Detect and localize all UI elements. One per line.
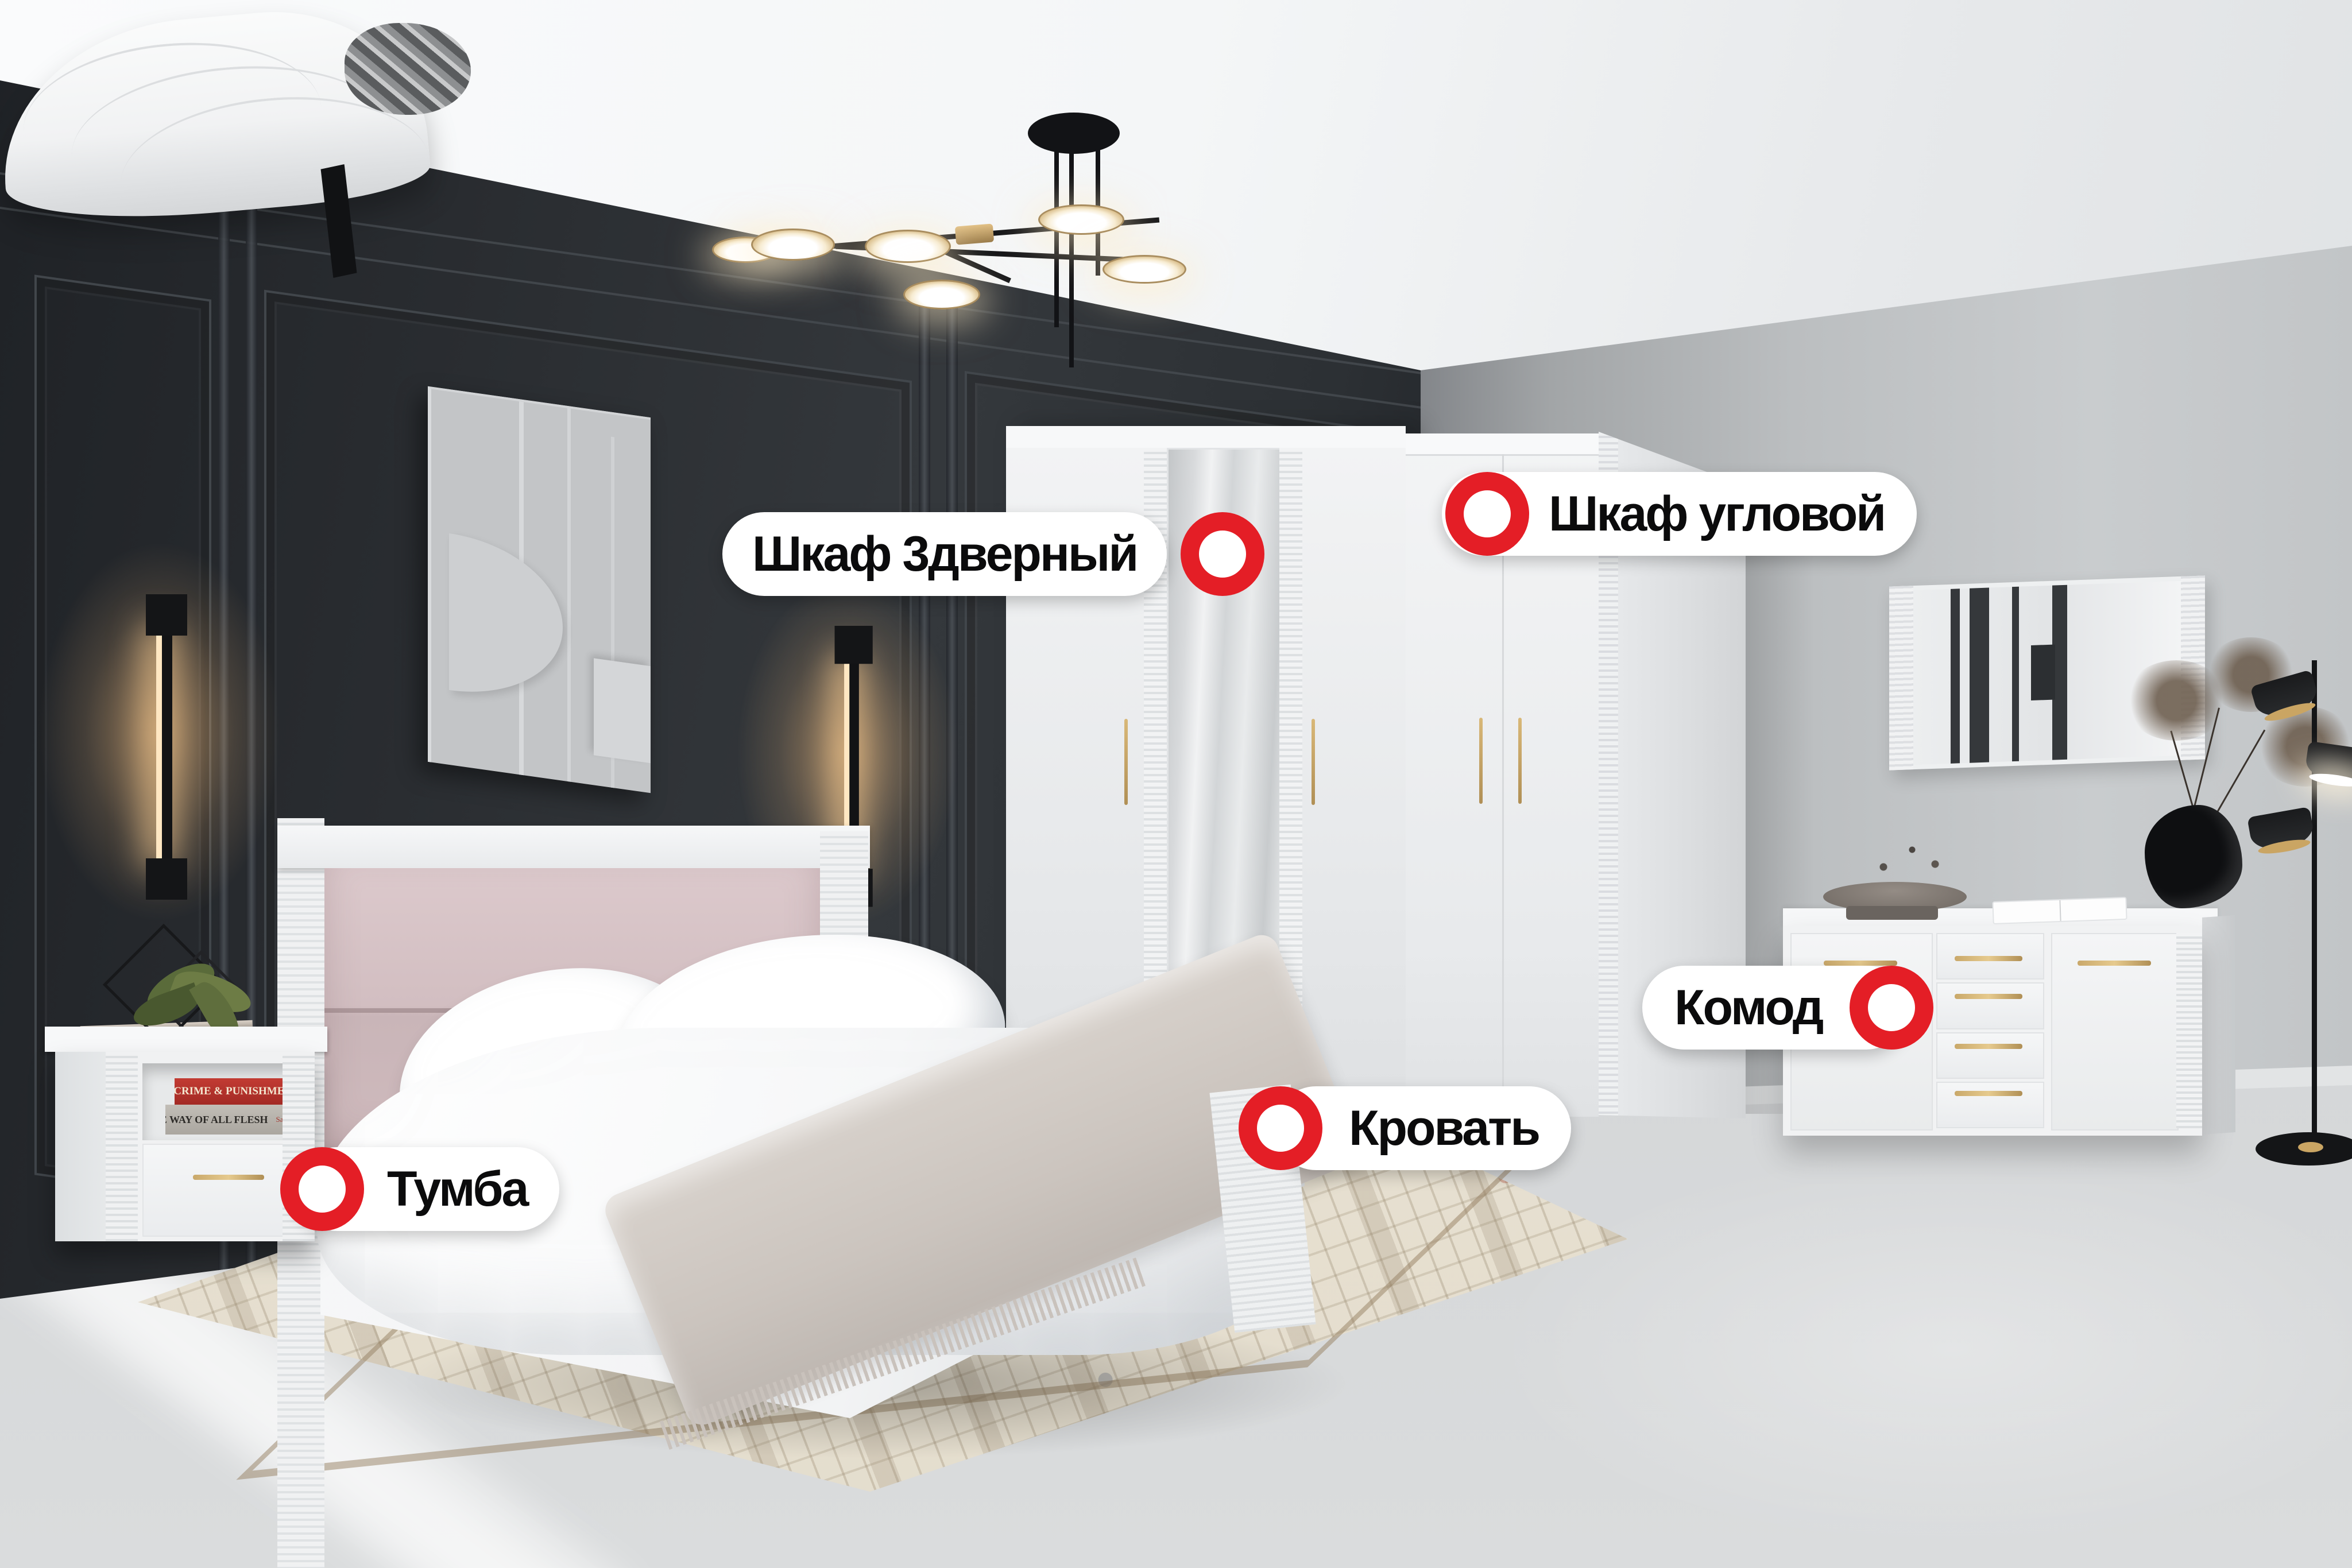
decor-vase	[2145, 805, 2242, 908]
book-title: CRIME & PUNISHMENT	[175, 1085, 299, 1098]
decor-open-book	[1992, 897, 2127, 924]
dresser-drawer	[1936, 1032, 2044, 1079]
art-notch	[594, 658, 651, 763]
chandelier-gold-sleeve	[955, 223, 994, 245]
art-arc	[449, 533, 563, 706]
mirror-reflection-lamp	[2031, 645, 2055, 700]
mirror-reflection-bar	[1951, 589, 1960, 764]
door-handle	[2078, 961, 2151, 966]
label-text: Кровать	[1349, 1100, 1539, 1157]
patterned-throw	[345, 23, 471, 115]
mirror-reflection-bar	[1970, 588, 1989, 763]
drawer-handle	[1955, 956, 2022, 961]
drawer-handle	[1955, 1091, 2022, 1096]
chandelier-rod	[1069, 138, 1074, 367]
label-pill: Кровать	[1274, 1086, 1571, 1170]
label-dresser: Комод	[1642, 966, 1908, 1050]
door-handle	[1479, 718, 1483, 804]
art-line	[567, 408, 571, 782]
drawer-handle	[1955, 1044, 2022, 1049]
wardrobe-top	[1006, 426, 1406, 450]
label-pill: Шкаф 3дверный	[722, 512, 1167, 596]
chandelier-light-disc	[865, 230, 951, 263]
decor-sprigs	[1849, 833, 1964, 890]
dresser-ribbed-trim	[2176, 933, 2202, 1128]
nightstand: CRIME & PUNISHMENT THE WAY OF ALL FLESH …	[55, 1052, 315, 1241]
dresser-drawer	[1936, 982, 2044, 1029]
label-text: Шкаф угловой	[1549, 486, 1885, 543]
wardrobe-door	[1302, 448, 1406, 1086]
door-handle	[1518, 718, 1522, 804]
door-handle	[1312, 719, 1315, 805]
floor-light-patch	[1493, 1148, 2352, 1550]
floor-lamp-pole	[2312, 660, 2317, 1154]
dresser-side	[2202, 915, 2235, 1135]
chandelier-light-disc	[751, 229, 835, 261]
label-wardrobe-3door: Шкаф 3дверный	[722, 512, 1264, 596]
dresser-door	[2051, 933, 2179, 1130]
hotspot-ring-icon[interactable]	[1239, 1086, 1322, 1170]
drawer-handle	[193, 1175, 264, 1180]
book-crime-and-punishment: CRIME & PUNISHMENT	[175, 1078, 299, 1105]
book-title: THE WAY OF ALL FLESH	[165, 1114, 268, 1126]
chandelier-light-disc	[1102, 255, 1186, 284]
nightstand-shelf: CRIME & PUNISHMENT THE WAY OF ALL FLESH …	[142, 1063, 299, 1140]
hotspot-ring-icon[interactable]	[1181, 512, 1264, 596]
hotspot-ring-icon[interactable]	[1445, 472, 1529, 556]
label-pill: Шкаф угловой	[1442, 472, 1917, 556]
dresser-drawer-stack	[1936, 933, 2044, 1128]
chandelier-light-disc	[1038, 204, 1124, 235]
label-text: Шкаф 3дверный	[752, 526, 1137, 583]
sconce-bar	[162, 611, 172, 881]
sconce-light-tube	[156, 634, 162, 858]
nightstand-top	[45, 1027, 327, 1052]
label-bed: Кровать	[1274, 1086, 1571, 1170]
dresser-drawer	[1936, 1082, 2044, 1128]
label-wardrobe-corner: Шкаф угловой	[1442, 472, 1917, 556]
wardrobe-top	[1406, 433, 1599, 456]
book-way-of-all-flesh: THE WAY OF ALL FLESH Samuel Butler	[165, 1105, 299, 1135]
chaise-lounge	[0, 0, 436, 247]
mirror-reflection-bar	[2012, 587, 2019, 761]
sconce-mount-icon	[835, 626, 873, 664]
label-text: Тумба	[387, 1161, 527, 1218]
door-handle	[1124, 719, 1128, 805]
label-pill: Комод	[1642, 966, 1908, 1050]
dresser-drawer	[1936, 933, 2044, 979]
mirror-ribbed-frame	[1889, 586, 1913, 770]
headboard-rail	[277, 826, 870, 868]
hotspot-ring-icon[interactable]	[280, 1147, 364, 1231]
abstract-wall-art	[428, 386, 651, 793]
decor-bowl-stand	[1846, 906, 1938, 920]
door-handle	[1824, 961, 1897, 966]
hotspot-ring-icon[interactable]	[1850, 966, 1933, 1050]
nightstand-ribbed-trim	[106, 1052, 138, 1241]
bedroom-furniture-scene: CRIME & PUNISHMENT THE WAY OF ALL FLESH …	[0, 0, 2352, 1568]
label-nightstand: Тумба	[295, 1147, 559, 1231]
chandelier-light-disc	[903, 280, 980, 309]
drawer-handle	[1955, 994, 2022, 999]
label-text: Комод	[1674, 979, 1822, 1036]
chandelier-canopy	[1028, 113, 1120, 154]
label-pill: Тумба	[295, 1147, 559, 1231]
sconce-mount-icon	[146, 594, 187, 636]
sconce-mount-icon	[146, 858, 187, 900]
